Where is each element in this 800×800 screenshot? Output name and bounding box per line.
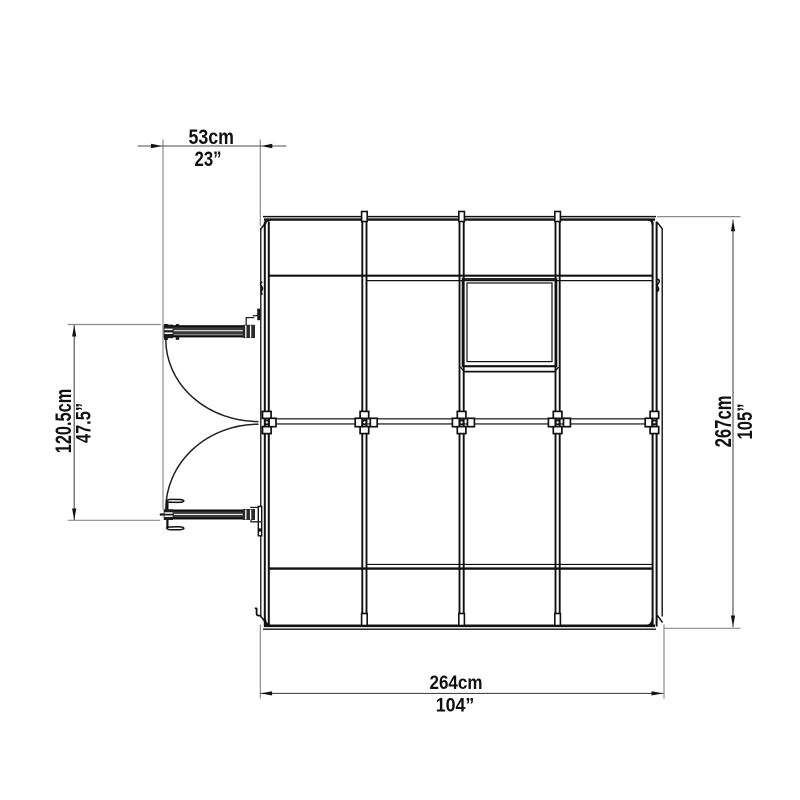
svg-text:53cm: 53cm [188, 126, 234, 149]
svg-text:23”: 23” [195, 148, 222, 171]
svg-text:104”: 104” [436, 695, 475, 716]
svg-text:105”: 105” [733, 404, 757, 440]
svg-text:264cm: 264cm [430, 673, 483, 694]
svg-text:47.5”: 47.5” [73, 403, 96, 443]
